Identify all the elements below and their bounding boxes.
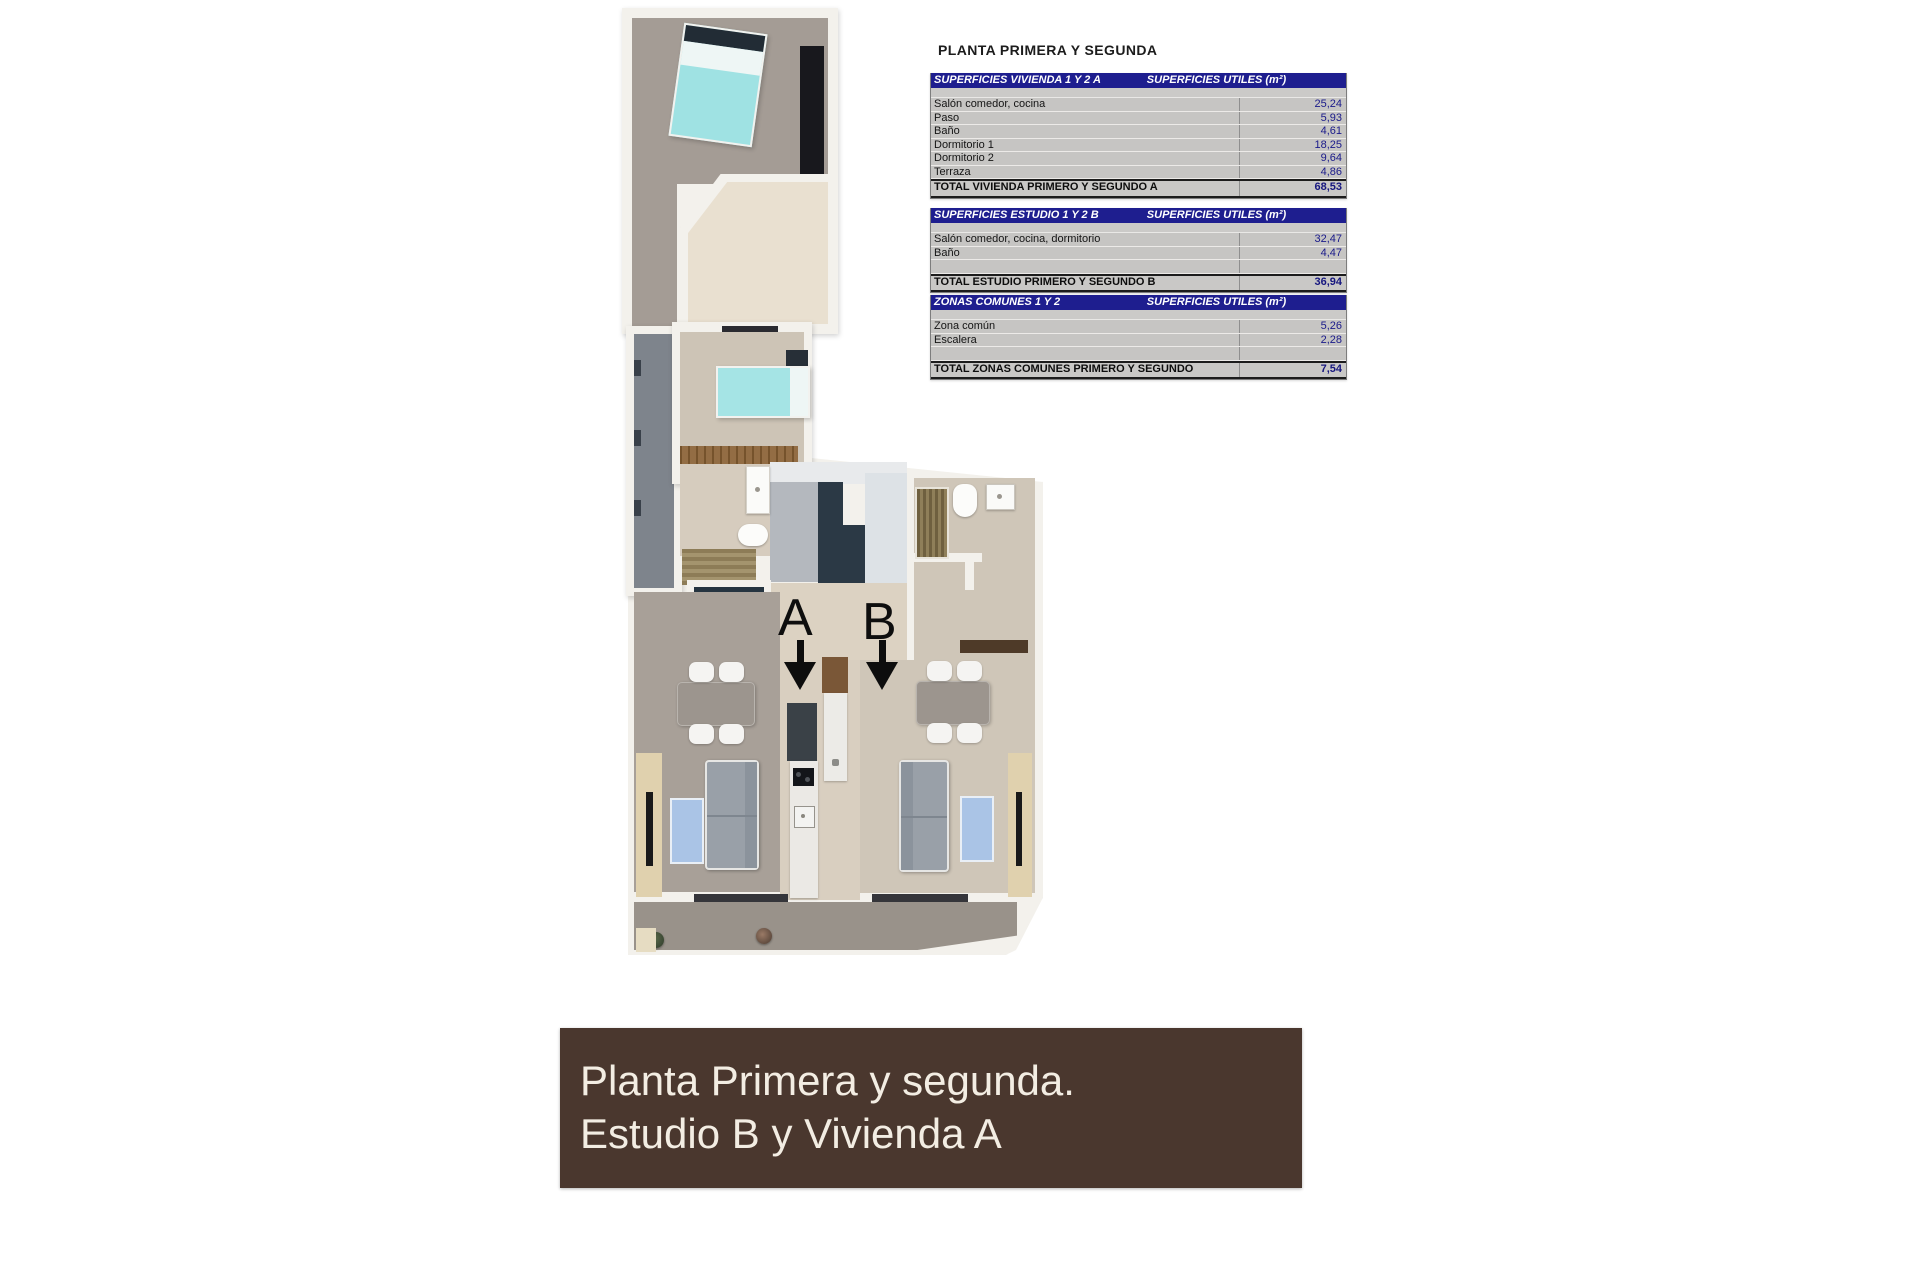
sliding-door-track [722, 326, 778, 332]
page-title: PLANTA PRIMERA Y SEGUNDA [938, 42, 1157, 58]
row-value: 25,24 [1239, 98, 1346, 111]
table-header: SUPERFICIES VIVIENDA 1 Y 2 A SUPERFICIES… [931, 73, 1346, 88]
table-header-left: ZONAS COMUNES 1 Y 2 [934, 296, 1060, 308]
row-label: Dormitorio 1 [931, 139, 1239, 152]
cooktop [793, 768, 814, 786]
row-label: Baño [931, 125, 1239, 138]
row-label: Escalera [931, 334, 1239, 347]
table-header-right: SUPERFICIES UTILES (m²) [1147, 73, 1286, 88]
row-label: Dormitorio 2 [931, 152, 1239, 165]
table-row: Paso5,93 [931, 112, 1346, 126]
drain [801, 814, 805, 818]
tv-unit-a [636, 753, 662, 897]
row-label [931, 347, 1239, 360]
row-value: 32,47 [1239, 233, 1346, 246]
table-header-left: SUPERFICIES ESTUDIO 1 Y 2 B [934, 209, 1099, 221]
balcony-planter [634, 430, 641, 446]
table-header-right: SUPERFICIES UTILES (m²) [1147, 295, 1286, 310]
row-label: Salón comedor, cocina, dormitorio [931, 233, 1239, 246]
burner [796, 772, 801, 777]
tv-screen [646, 792, 653, 866]
bench [960, 640, 1028, 653]
sofa-seam [707, 815, 757, 817]
stairs-a [770, 482, 818, 582]
row-value: 4,47 [1239, 247, 1346, 260]
caption-line-1: Planta Primera y segunda. [560, 1028, 1302, 1107]
table-header-left: SUPERFICIES VIVIENDA 1 Y 2 A [934, 74, 1101, 86]
row-label: Salón comedor, cocina [931, 98, 1239, 111]
total-label: TOTAL ESTUDIO PRIMERO Y SEGUNDO B [931, 276, 1239, 291]
row-label: Terraza [931, 166, 1239, 179]
row-value: 18,25 [1239, 139, 1346, 152]
bottom-terrace [634, 902, 1017, 950]
row-value: 4,61 [1239, 125, 1346, 138]
table-row: Baño4,61 [931, 125, 1346, 139]
terrace-pillar [636, 928, 656, 952]
plant [756, 928, 772, 944]
faucet [832, 759, 839, 766]
table-header-right: SUPERFICIES UTILES (m²) [1147, 208, 1286, 223]
toilet [738, 524, 768, 546]
blank-row [931, 88, 1346, 98]
chair [689, 662, 714, 682]
stair-core-dark [818, 482, 843, 525]
table-header: ZONAS COMUNES 1 Y 2 SUPERFICIES UTILES (… [931, 295, 1346, 310]
row-value: 2,28 [1239, 334, 1346, 347]
table-row: Dormitorio 29,64 [931, 152, 1346, 166]
chair [957, 723, 982, 743]
chair [719, 724, 744, 744]
nightstand [786, 350, 808, 367]
toilet [953, 484, 977, 517]
caption-banner: Planta Primera y segunda. Estudio B y Vi… [560, 1028, 1302, 1188]
table-row: Terraza4,86 [931, 166, 1346, 180]
table-superficies-vivienda: SUPERFICIES VIVIENDA 1 Y 2 A SUPERFICIES… [930, 73, 1347, 199]
row-value [1239, 347, 1346, 360]
unit-b-arrow-icon [864, 640, 900, 690]
balcony-planter [634, 500, 641, 516]
washbasin [746, 466, 770, 514]
table-zonas-comunes: ZONAS COMUNES 1 Y 2 SUPERFICIES UTILES (… [930, 295, 1347, 380]
chair [957, 661, 982, 681]
table-row: Salón comedor, cocina25,24 [931, 98, 1346, 112]
table-row: Dormitorio 118,25 [931, 139, 1346, 153]
bed-pillow [790, 368, 808, 416]
double-bed [668, 23, 767, 148]
total-label: TOTAL VIVIENDA PRIMERO Y SEGUNDO A [931, 181, 1239, 196]
basin-drain [997, 494, 1002, 499]
table-total-row: TOTAL ZONAS COMUNES PRIMERO Y SEGUNDO7,5… [931, 361, 1346, 380]
blank-row [931, 223, 1346, 233]
row-value: 5,93 [1239, 112, 1346, 125]
glass-slider [872, 894, 968, 902]
rug-a [670, 798, 704, 864]
wall-bathroom-b-stub [965, 562, 974, 590]
chair [927, 661, 952, 681]
dining-table-a [677, 682, 755, 726]
kitchen-b-cabinet [822, 657, 848, 693]
row-value: 4,86 [1239, 166, 1346, 179]
table-row: Zona común5,26 [931, 320, 1346, 334]
unit-a-arrow-icon [782, 640, 818, 690]
sofa-seam [901, 816, 947, 818]
table-row: Salón comedor, cocina, dormitorio32,47 [931, 233, 1346, 247]
chair [927, 723, 952, 743]
total-value: 7,54 [1239, 363, 1346, 378]
kitchen-sink [794, 806, 815, 828]
washbasin [986, 484, 1015, 510]
table-total-row: TOTAL ESTUDIO PRIMERO Y SEGUNDO B36,94 [931, 274, 1346, 293]
row-label: Zona común [931, 320, 1239, 333]
kitchen-a-cabinet [787, 703, 817, 761]
single-bed [716, 366, 810, 418]
chair [719, 662, 744, 682]
row-value: 5,26 [1239, 320, 1346, 333]
table-row: Baño4,47 [931, 247, 1346, 261]
total-label: TOTAL ZONAS COMUNES PRIMERO Y SEGUNDO [931, 363, 1239, 378]
row-value: 9,64 [1239, 152, 1346, 165]
basin-drain [755, 487, 760, 492]
glass-slider [694, 894, 788, 902]
tv-unit-b [1008, 753, 1032, 897]
dining-table-b [916, 681, 990, 725]
wardrobe-bedroom-1 [800, 46, 824, 180]
stairs-b [865, 473, 907, 583]
table-header: SUPERFICIES ESTUDIO 1 Y 2 B SUPERFICIES … [931, 208, 1346, 223]
row-label: Paso [931, 112, 1239, 125]
paso-corridor [632, 180, 677, 330]
balcony-planter [634, 360, 641, 376]
total-value: 68,53 [1239, 181, 1346, 196]
tv-screen [1016, 792, 1022, 866]
shower [915, 487, 949, 559]
row-label [931, 260, 1239, 273]
sofa-b [899, 760, 949, 872]
kitchen-a-island [790, 761, 818, 898]
unit-a-label: A [778, 592, 813, 644]
kitchen-b-island [824, 693, 847, 781]
stair-core-dark [818, 525, 865, 583]
sofa-a [705, 760, 759, 870]
page: A B PLANTA PRIMERA Y SEGUNDA SUPERFICIES… [0, 0, 1920, 1280]
caption-line-2: Estudio B y Vivienda A [560, 1107, 1302, 1160]
table-row: Escalera2,28 [931, 334, 1346, 348]
blank-row [931, 310, 1346, 320]
row-label: Baño [931, 247, 1239, 260]
table-total-row: TOTAL VIVIENDA PRIMERO Y SEGUNDO A68,53 [931, 179, 1346, 198]
table-row-empty [931, 260, 1346, 274]
rug-b [960, 796, 994, 862]
burner [805, 777, 810, 782]
wall-stair-core [907, 473, 914, 660]
total-value: 36,94 [1239, 276, 1346, 291]
chair [689, 724, 714, 744]
table-superficies-estudio: SUPERFICIES ESTUDIO 1 Y 2 B SUPERFICIES … [930, 208, 1347, 293]
row-value [1239, 260, 1346, 273]
table-row-empty [931, 347, 1346, 361]
